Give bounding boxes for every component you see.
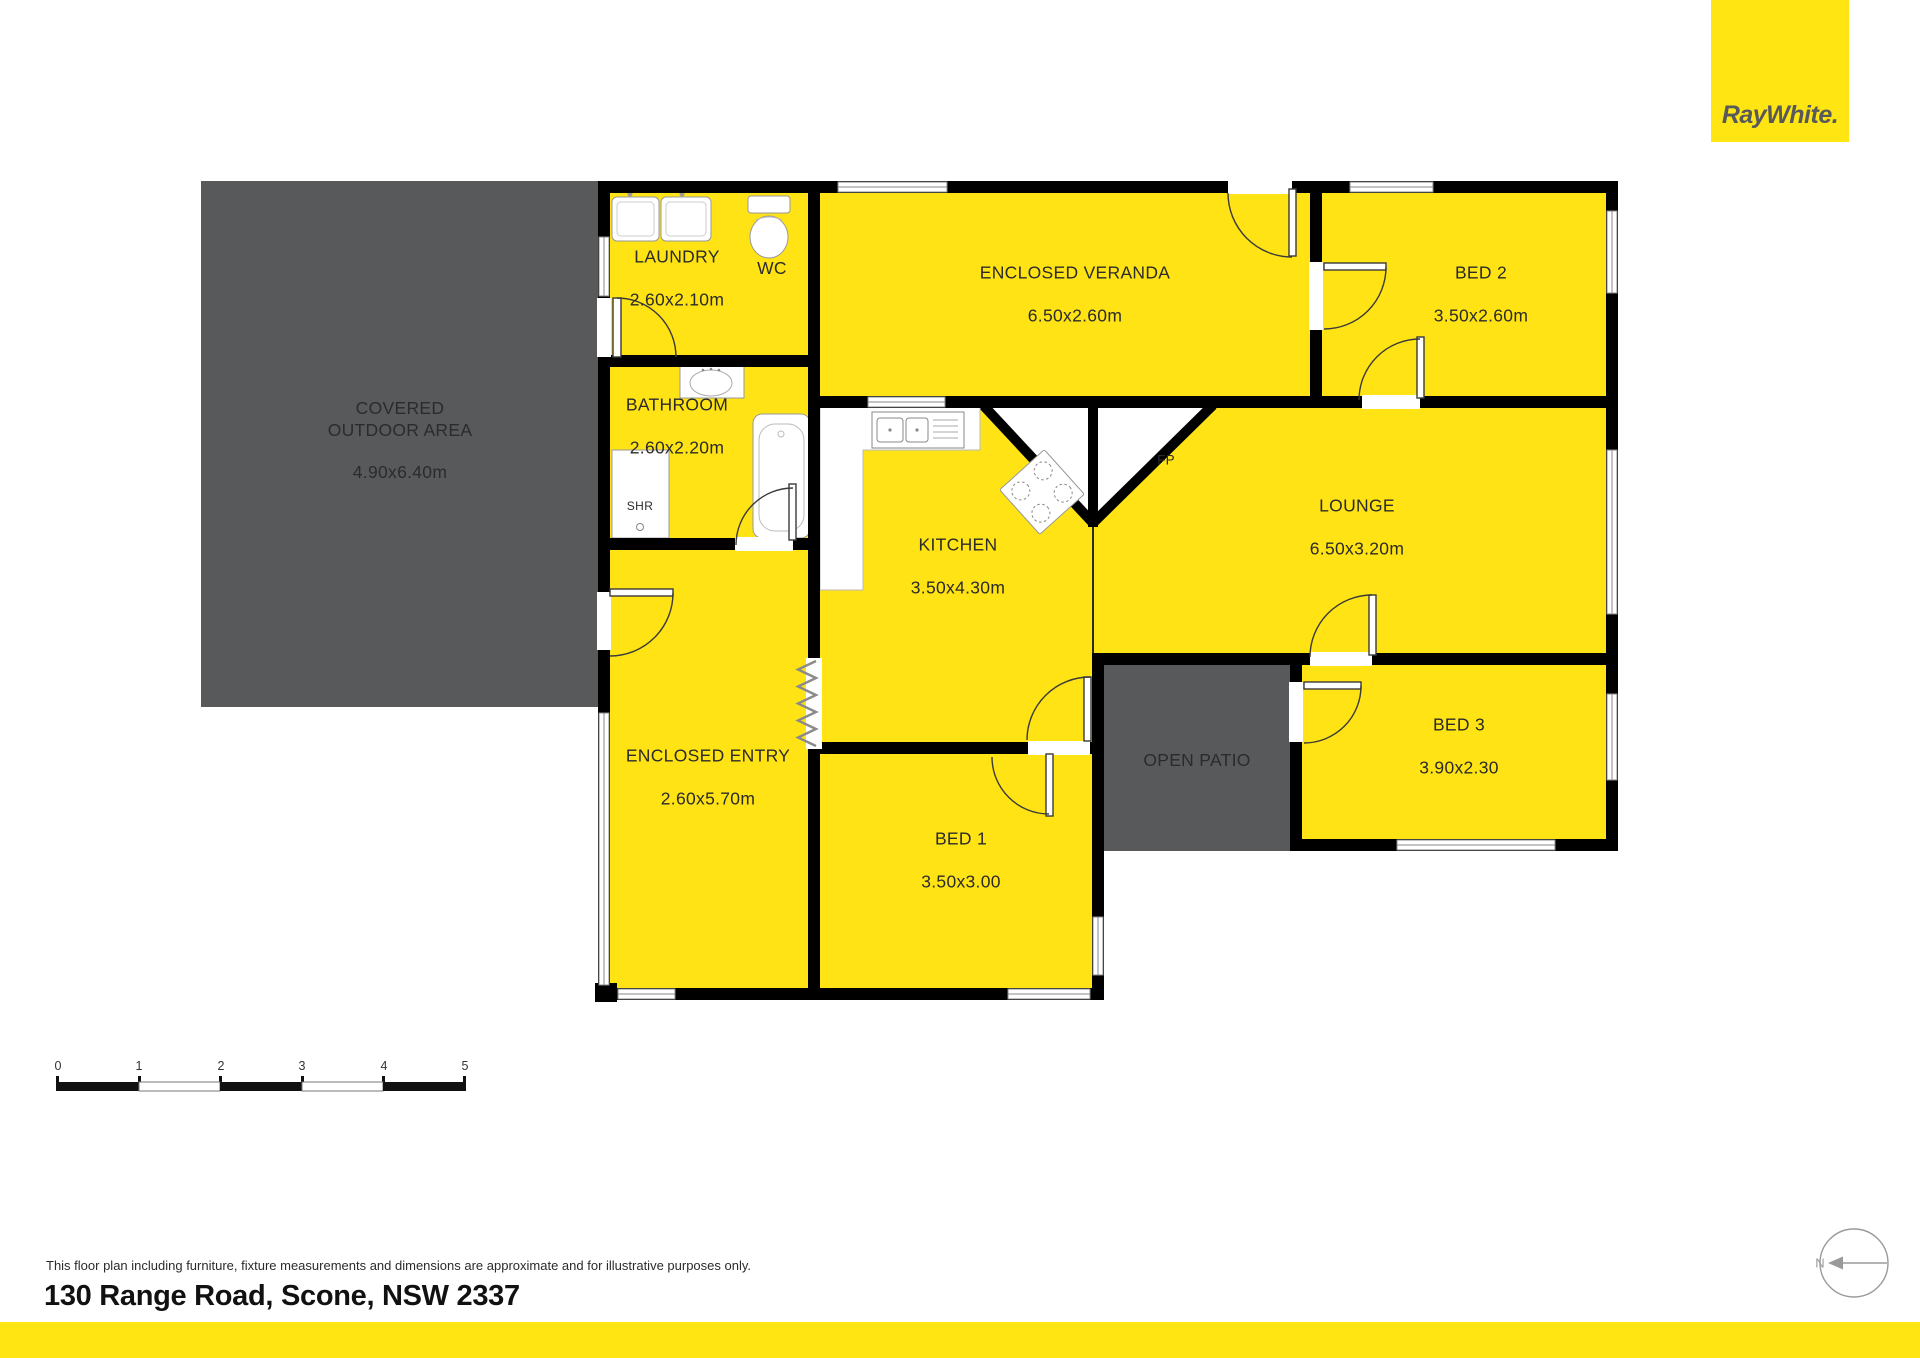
disclaimer-text: This floor plan including furniture, fix… bbox=[46, 1258, 751, 1273]
toilet-icon bbox=[748, 196, 790, 258]
scale-number: 5 bbox=[462, 1059, 469, 1073]
scale-number: 2 bbox=[218, 1059, 225, 1073]
north-compass-icon bbox=[1820, 1229, 1888, 1297]
open-patio-shape bbox=[1104, 665, 1290, 851]
scale-number: 0 bbox=[55, 1059, 62, 1073]
shower-icon bbox=[612, 450, 669, 538]
footer-accent-bar bbox=[0, 1322, 1920, 1358]
floorplan-drawing bbox=[0, 0, 1920, 1358]
scale-number: 3 bbox=[299, 1059, 306, 1073]
floorplan-page: COVERED OUTDOOR AREA 4.90x6.40m LAUNDRY … bbox=[0, 0, 1920, 1358]
raywhite-logo-text: RayWhite. bbox=[1722, 101, 1838, 130]
raywhite-logo: RayWhite. bbox=[1711, 0, 1849, 142]
scale-number: 4 bbox=[381, 1059, 388, 1073]
bathtub-icon bbox=[753, 414, 810, 538]
room-floor-shapes bbox=[598, 183, 1618, 1000]
compass-north-label: N bbox=[1815, 1256, 1824, 1271]
scale-bar bbox=[56, 1076, 466, 1091]
laundry-tub-icon bbox=[612, 192, 711, 242]
property-address: 130 Range Road, Scone, NSW 2337 bbox=[44, 1280, 520, 1313]
bathroom-sink-icon bbox=[680, 366, 744, 398]
covered-outdoor-area-shape bbox=[201, 181, 598, 707]
scale-number: 1 bbox=[136, 1059, 143, 1073]
